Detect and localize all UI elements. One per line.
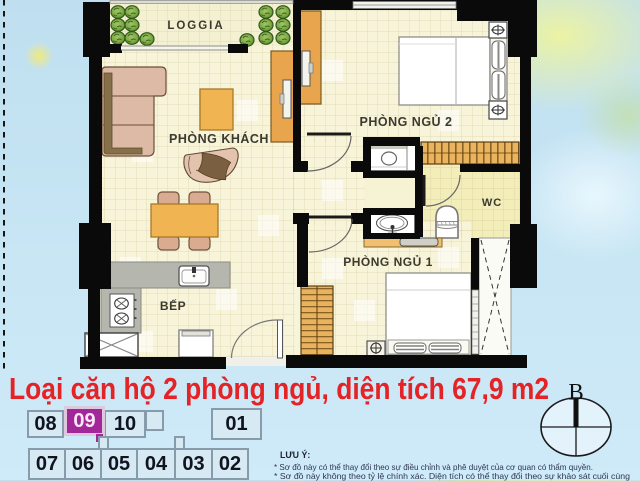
svg-text:LOGGIA: LOGGIA (167, 20, 224, 32)
svg-text:PHÒNG KHÁCH: PHÒNG KHÁCH (169, 131, 269, 146)
svg-text:WC: WC (482, 197, 502, 209)
svg-text:PHÒNG NGỦ 2: PHÒNG NGỦ 2 (359, 114, 452, 129)
svg-text:B: B (568, 380, 583, 405)
svg-text:BẾP: BẾP (160, 298, 186, 313)
svg-text:PHÒNG NGỦ 1: PHÒNG NGỦ 1 (343, 254, 433, 269)
